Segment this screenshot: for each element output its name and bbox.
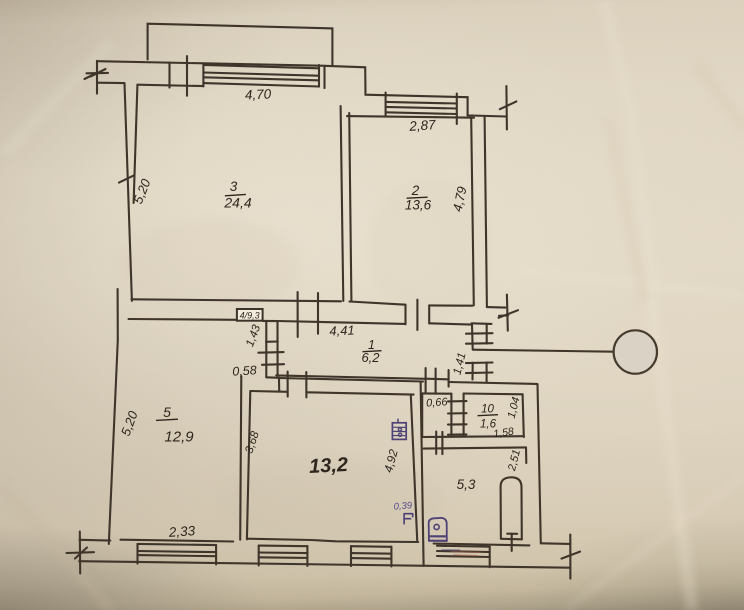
svg-text:1,43: 1,43: [244, 323, 263, 349]
svg-text:3,68: 3,68: [243, 430, 262, 456]
svg-text:2,33: 2,33: [167, 523, 196, 540]
svg-text:0,39: 0,39: [393, 500, 413, 512]
svg-text:1,58: 1,58: [493, 426, 515, 441]
svg-text:1: 1: [368, 338, 375, 352]
svg-text:12,9: 12,9: [164, 429, 194, 446]
svg-text:13,2: 13,2: [308, 454, 348, 478]
svg-text:4,79: 4,79: [450, 185, 470, 213]
svg-text:24,4: 24,4: [223, 195, 251, 211]
svg-text:2,51: 2,51: [506, 448, 523, 473]
svg-text:1,41: 1,41: [452, 351, 469, 376]
svg-text:4,70: 4,70: [244, 86, 272, 102]
svg-text:2: 2: [411, 183, 420, 198]
svg-text:10: 10: [481, 404, 494, 416]
svg-text:1,04: 1,04: [506, 396, 523, 420]
svg-text:4/9,3: 4/9,3: [240, 311, 260, 321]
svg-text:0,58: 0,58: [232, 363, 257, 379]
svg-text:4,41: 4,41: [329, 323, 355, 339]
svg-text:1,6: 1,6: [480, 419, 497, 431]
svg-text:5,20: 5,20: [118, 408, 141, 438]
svg-text:0,66: 0,66: [426, 396, 449, 410]
svg-text:5,3: 5,3: [457, 477, 476, 492]
svg-text:5: 5: [163, 404, 171, 420]
svg-text:6,2: 6,2: [361, 350, 380, 365]
svg-text:13,6: 13,6: [405, 198, 432, 213]
svg-text:5,20: 5,20: [130, 176, 154, 206]
svg-text:3: 3: [230, 179, 238, 194]
svg-text:2,87: 2,87: [408, 117, 437, 134]
svg-text:4,92: 4,92: [381, 448, 401, 474]
